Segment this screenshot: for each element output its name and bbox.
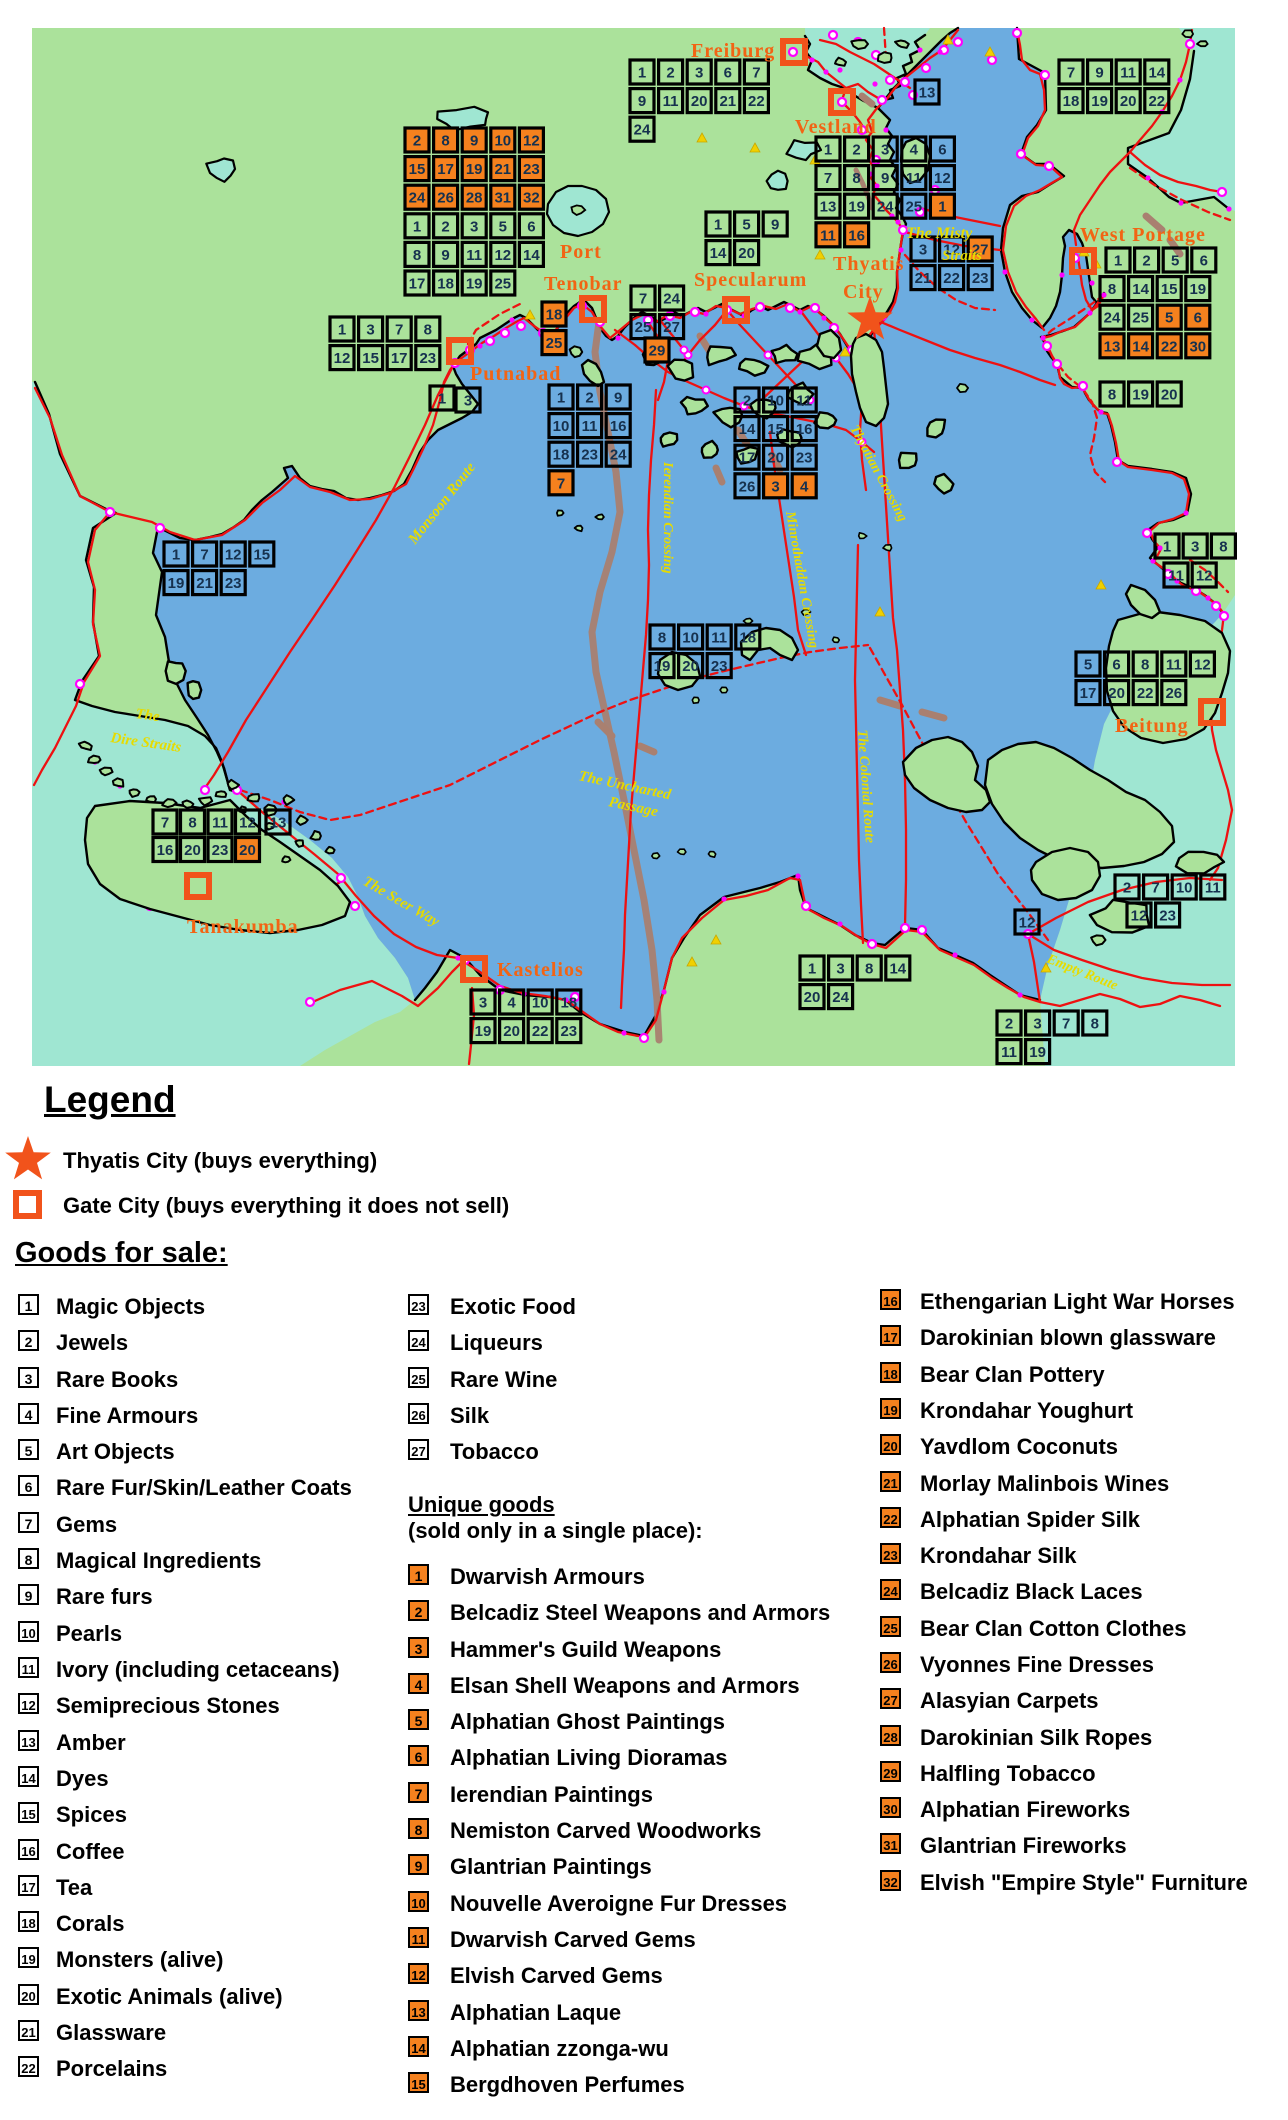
svg-text:21: 21: [494, 161, 511, 178]
svg-text:22: 22: [1161, 338, 1178, 355]
svg-text:20: 20: [682, 658, 699, 675]
svg-text:15: 15: [253, 547, 270, 564]
svg-text:2: 2: [666, 65, 674, 82]
svg-text:Kastelios: Kastelios: [497, 959, 584, 981]
svg-text:13: 13: [820, 199, 837, 216]
svg-text:5: 5: [742, 217, 750, 234]
svg-text:8: 8: [424, 322, 432, 339]
svg-text:17: 17: [409, 276, 426, 293]
svg-text:Putnabad: Putnabad: [470, 363, 561, 385]
svg-text:12: 12: [523, 133, 540, 150]
svg-text:24: 24: [663, 291, 680, 308]
svg-text:10: 10: [532, 995, 549, 1012]
svg-text:Beitung: Beitung: [1115, 715, 1189, 737]
svg-text:23: 23: [560, 1023, 577, 1040]
svg-text:14: 14: [1148, 65, 1165, 82]
svg-text:8: 8: [441, 133, 449, 150]
svg-text:19: 19: [466, 276, 483, 293]
svg-text:19: 19: [848, 199, 865, 216]
svg-text:11: 11: [582, 418, 598, 435]
svg-text:The Misty: The Misty: [906, 225, 973, 242]
svg-text:1: 1: [824, 142, 832, 159]
svg-text:10: 10: [494, 133, 511, 150]
svg-text:24: 24: [832, 989, 849, 1006]
svg-text:3: 3: [464, 393, 472, 410]
svg-text:11: 11: [1205, 880, 1221, 897]
svg-text:19: 19: [1189, 281, 1206, 298]
svg-text:1: 1: [557, 390, 565, 407]
svg-text:7: 7: [395, 322, 403, 339]
svg-text:26: 26: [739, 478, 756, 495]
svg-text:31: 31: [494, 190, 511, 207]
svg-text:7: 7: [639, 291, 647, 308]
svg-text:20: 20: [767, 450, 784, 467]
svg-text:2: 2: [1142, 253, 1150, 270]
svg-text:7: 7: [161, 815, 169, 832]
svg-text:25: 25: [905, 199, 922, 216]
svg-text:15: 15: [767, 421, 784, 438]
svg-text:8: 8: [852, 170, 860, 187]
svg-text:8: 8: [1091, 1016, 1099, 1033]
svg-text:17: 17: [1080, 685, 1097, 702]
svg-text:6: 6: [1112, 657, 1120, 674]
svg-text:10: 10: [553, 418, 570, 435]
svg-text:16: 16: [157, 842, 174, 859]
svg-text:23: 23: [225, 575, 242, 592]
svg-text:3: 3: [479, 995, 487, 1012]
svg-text:2: 2: [743, 393, 751, 410]
svg-text:1: 1: [338, 322, 346, 339]
svg-text:22: 22: [1148, 93, 1165, 110]
svg-text:27: 27: [663, 319, 680, 336]
svg-text:Port: Port: [560, 241, 602, 263]
svg-text:8: 8: [1108, 281, 1116, 298]
svg-text:19: 19: [1029, 1044, 1046, 1061]
svg-text:4: 4: [507, 995, 516, 1012]
svg-text:11: 11: [1120, 65, 1136, 82]
svg-text:3: 3: [881, 142, 889, 159]
svg-text:23: 23: [581, 447, 598, 464]
svg-text:12: 12: [1194, 657, 1211, 674]
svg-text:25: 25: [1132, 310, 1149, 327]
svg-text:11: 11: [820, 227, 836, 244]
svg-text:6: 6: [1194, 310, 1202, 327]
svg-text:11: 11: [466, 247, 482, 264]
svg-text:2: 2: [852, 142, 860, 159]
svg-text:29: 29: [649, 343, 666, 360]
svg-text:7: 7: [1062, 1016, 1070, 1033]
svg-text:3: 3: [919, 242, 927, 259]
svg-text:20: 20: [1120, 93, 1137, 110]
svg-text:24: 24: [409, 190, 426, 207]
svg-text:25: 25: [635, 319, 652, 336]
svg-text:23: 23: [419, 350, 436, 367]
svg-text:15: 15: [362, 350, 379, 367]
svg-text:1: 1: [938, 199, 946, 216]
svg-text:12: 12: [239, 815, 256, 832]
svg-text:28: 28: [466, 190, 483, 207]
svg-text:11: 11: [711, 630, 727, 647]
svg-text:9: 9: [771, 217, 779, 234]
svg-text:24: 24: [877, 199, 894, 216]
svg-text:24: 24: [634, 122, 651, 139]
svg-text:23: 23: [972, 270, 989, 287]
svg-text:Specularum: Specularum: [694, 269, 807, 291]
svg-text:13: 13: [1104, 338, 1121, 355]
svg-text:14: 14: [739, 421, 756, 438]
svg-text:9: 9: [881, 170, 889, 187]
svg-text:10: 10: [1176, 880, 1193, 897]
svg-text:1: 1: [438, 391, 446, 408]
svg-text:6: 6: [1200, 253, 1208, 270]
svg-text:12: 12: [334, 350, 351, 367]
svg-text:22: 22: [748, 93, 765, 110]
svg-text:25: 25: [494, 276, 511, 293]
svg-text:20: 20: [184, 842, 201, 859]
svg-text:11: 11: [212, 815, 228, 832]
svg-text:West Portage: West Portage: [1080, 224, 1206, 246]
svg-text:9: 9: [638, 93, 646, 110]
svg-text:9: 9: [1095, 65, 1103, 82]
svg-text:3: 3: [771, 478, 779, 495]
svg-text:6: 6: [938, 142, 946, 159]
svg-text:12: 12: [225, 547, 242, 564]
svg-text:10: 10: [682, 630, 699, 647]
svg-text:11: 11: [1001, 1044, 1017, 1061]
svg-text:16: 16: [610, 418, 627, 435]
svg-text:The: The: [134, 706, 160, 725]
svg-text:1: 1: [638, 65, 646, 82]
svg-text:11: 11: [906, 170, 922, 187]
svg-text:11: 11: [796, 393, 812, 410]
svg-text:16: 16: [796, 421, 813, 438]
svg-text:Straits: Straits: [942, 248, 982, 264]
svg-text:1: 1: [808, 961, 816, 978]
svg-text:7: 7: [1151, 880, 1159, 897]
svg-text:3: 3: [1033, 1016, 1041, 1033]
svg-text:8: 8: [1141, 657, 1149, 674]
svg-text:9: 9: [614, 390, 622, 407]
svg-text:17: 17: [739, 450, 756, 467]
svg-text:4: 4: [800, 478, 809, 495]
svg-text:19: 19: [654, 658, 671, 675]
svg-text:1: 1: [413, 218, 421, 235]
svg-text:5: 5: [1171, 253, 1179, 270]
svg-text:2: 2: [1005, 1016, 1013, 1033]
svg-text:22: 22: [532, 1023, 549, 1040]
svg-text:20: 20: [1161, 387, 1178, 404]
svg-text:Tanakumba: Tanakumba: [187, 916, 299, 938]
svg-text:23: 23: [212, 842, 229, 859]
svg-text:14: 14: [1132, 281, 1149, 298]
svg-text:Tenobar: Tenobar: [544, 273, 623, 295]
svg-text:8: 8: [188, 815, 196, 832]
svg-text:8: 8: [1219, 539, 1227, 556]
svg-text:26: 26: [437, 190, 454, 207]
svg-text:22: 22: [943, 270, 960, 287]
svg-text:2: 2: [441, 218, 449, 235]
svg-text:30: 30: [1189, 338, 1206, 355]
svg-text:17: 17: [437, 161, 454, 178]
svg-text:1: 1: [172, 547, 180, 564]
svg-text:13: 13: [270, 815, 287, 832]
svg-text:13: 13: [919, 85, 936, 102]
svg-text:7: 7: [752, 65, 760, 82]
svg-text:9: 9: [441, 247, 449, 264]
svg-text:7: 7: [824, 170, 832, 187]
svg-text:18: 18: [546, 307, 563, 324]
svg-text:2: 2: [585, 390, 593, 407]
svg-text:Freiburg: Freiburg: [691, 40, 775, 62]
svg-text:19: 19: [168, 575, 185, 592]
svg-text:14: 14: [889, 961, 906, 978]
svg-text:12: 12: [934, 170, 951, 187]
svg-text:20: 20: [503, 1023, 520, 1040]
svg-text:5: 5: [1165, 310, 1173, 327]
svg-text:10: 10: [767, 393, 784, 410]
svg-text:2: 2: [413, 133, 421, 150]
svg-text:11: 11: [1166, 657, 1182, 674]
svg-text:12: 12: [1019, 915, 1036, 932]
svg-text:1: 1: [1163, 539, 1171, 556]
svg-text:12: 12: [494, 247, 511, 264]
svg-text:Thyatis: Thyatis: [833, 253, 904, 275]
svg-text:Vestland: Vestland: [795, 116, 877, 138]
svg-text:4: 4: [910, 142, 919, 159]
svg-text:21: 21: [915, 270, 932, 287]
svg-text:1: 1: [1114, 253, 1122, 270]
svg-text:32: 32: [523, 190, 540, 207]
svg-text:22: 22: [1137, 685, 1154, 702]
svg-text:3: 3: [470, 218, 478, 235]
svg-text:9: 9: [470, 133, 478, 150]
svg-text:6: 6: [527, 218, 535, 235]
svg-text:8: 8: [1108, 387, 1116, 404]
svg-text:3: 3: [1191, 539, 1199, 556]
svg-text:5: 5: [499, 218, 507, 235]
svg-text:Ierendian Crossing: Ierendian Crossing: [660, 461, 675, 574]
svg-text:26: 26: [1165, 685, 1182, 702]
svg-text:7: 7: [200, 547, 208, 564]
svg-text:8: 8: [865, 961, 873, 978]
svg-text:8: 8: [413, 247, 421, 264]
svg-text:12: 12: [1196, 568, 1213, 585]
svg-text:5: 5: [1084, 657, 1092, 674]
svg-text:20: 20: [691, 93, 708, 110]
svg-text:18: 18: [437, 276, 454, 293]
svg-text:18: 18: [1063, 93, 1080, 110]
svg-text:12: 12: [1131, 908, 1148, 925]
svg-text:3: 3: [695, 65, 703, 82]
svg-text:19: 19: [475, 1023, 492, 1040]
svg-text:8: 8: [658, 630, 666, 647]
svg-text:20: 20: [1108, 685, 1125, 702]
svg-text:20: 20: [738, 245, 755, 262]
svg-text:23: 23: [1159, 908, 1176, 925]
svg-text:24: 24: [610, 447, 627, 464]
svg-text:18: 18: [560, 995, 577, 1012]
svg-text:7: 7: [1067, 65, 1075, 82]
svg-text:18: 18: [553, 447, 570, 464]
svg-text:14: 14: [1132, 338, 1149, 355]
svg-text:21: 21: [196, 575, 213, 592]
svg-text:14: 14: [523, 247, 540, 264]
svg-text:23: 23: [711, 658, 728, 675]
svg-text:23: 23: [523, 161, 540, 178]
svg-text:25: 25: [546, 335, 563, 352]
svg-text:15: 15: [409, 161, 426, 178]
svg-text:3: 3: [366, 322, 374, 339]
svg-text:19: 19: [1091, 93, 1108, 110]
svg-text:24: 24: [1104, 310, 1121, 327]
svg-text:15: 15: [1161, 281, 1178, 298]
svg-text:19: 19: [1132, 387, 1149, 404]
svg-text:21: 21: [719, 93, 736, 110]
svg-text:6: 6: [724, 65, 732, 82]
svg-text:11: 11: [663, 93, 679, 110]
svg-text:City: City: [843, 281, 884, 303]
svg-text:20: 20: [804, 989, 821, 1006]
svg-text:16: 16: [848, 227, 865, 244]
svg-text:1: 1: [714, 217, 722, 234]
svg-text:19: 19: [466, 161, 483, 178]
svg-text:2: 2: [1123, 880, 1131, 897]
svg-text:23: 23: [796, 450, 813, 467]
svg-text:11: 11: [1168, 568, 1184, 585]
svg-text:18: 18: [739, 630, 756, 647]
svg-text:7: 7: [557, 475, 565, 492]
svg-text:17: 17: [391, 350, 408, 367]
svg-text:14: 14: [710, 245, 727, 262]
svg-text:20: 20: [239, 842, 256, 859]
svg-text:3: 3: [836, 961, 844, 978]
